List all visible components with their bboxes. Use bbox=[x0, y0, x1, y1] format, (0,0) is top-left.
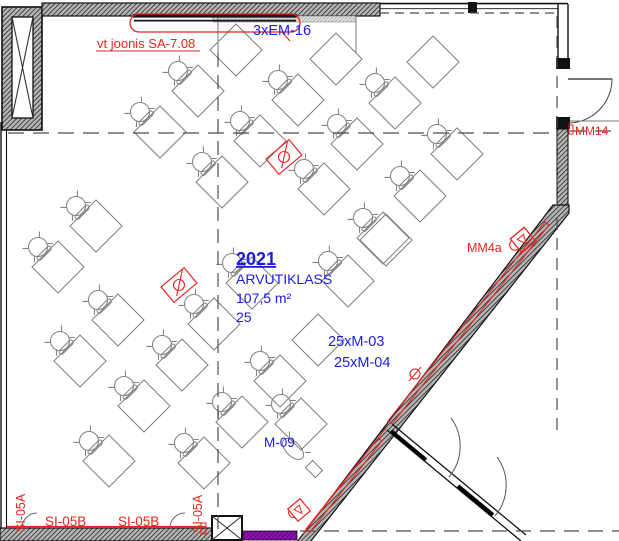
entrance-door-arc-2 bbox=[495, 457, 506, 516]
desk-chair bbox=[421, 118, 454, 151]
desk-table bbox=[394, 170, 446, 222]
right-wall-upper bbox=[556, 4, 570, 129]
monitor-label-1: 25xM-03 bbox=[328, 334, 384, 350]
mm4a-label: MM4a bbox=[467, 241, 502, 255]
entrance-wall bbox=[387, 418, 526, 541]
desk-chair bbox=[124, 96, 157, 129]
ref-note-label: vt joonis SA-7.08 bbox=[97, 36, 195, 51]
shaft-column bbox=[2, 7, 42, 130]
red-wall-line-diagonal bbox=[303, 428, 386, 534]
desk-chair bbox=[178, 288, 211, 321]
si05a-label-1: SI-05A bbox=[14, 493, 28, 532]
desk-chair bbox=[321, 108, 354, 141]
desk-chair bbox=[73, 425, 106, 458]
labels-layer: 3xEM-16 vt joonis SA-7.08 2021 ARVUTIKLA… bbox=[14, 23, 609, 533]
desk-table bbox=[118, 380, 170, 432]
desk-table bbox=[92, 294, 144, 346]
desk-table bbox=[431, 128, 483, 180]
desk-table bbox=[156, 339, 208, 391]
desk-table bbox=[188, 298, 240, 350]
desk-chair bbox=[262, 64, 295, 97]
desk-table bbox=[234, 115, 286, 167]
desk-table bbox=[298, 163, 350, 215]
door-swing-arc bbox=[568, 79, 612, 123]
desk-table bbox=[216, 396, 268, 448]
entrance-door-leaf-1 bbox=[391, 431, 426, 460]
em-label: 3xEM-16 bbox=[253, 23, 311, 39]
desk-chair bbox=[359, 67, 392, 100]
left-wall bbox=[1, 122, 7, 528]
right-wall-lower bbox=[557, 129, 568, 211]
desk-chair bbox=[347, 202, 380, 235]
desk-chair bbox=[288, 153, 321, 186]
purple-wall-segment bbox=[243, 531, 297, 540]
desk-table bbox=[134, 106, 186, 158]
desk-chair bbox=[168, 427, 201, 460]
valve-arc-2 bbox=[170, 513, 185, 528]
desk-table bbox=[70, 200, 122, 252]
desk-table bbox=[178, 437, 230, 489]
desk-table bbox=[254, 355, 306, 407]
desk-table bbox=[357, 212, 409, 264]
desk-table bbox=[32, 241, 84, 293]
desk-chair bbox=[244, 345, 277, 378]
desk-chair bbox=[186, 146, 219, 179]
entrance-door-arc-1 bbox=[449, 418, 460, 477]
desk-table bbox=[272, 74, 324, 126]
teacher-equipment bbox=[306, 461, 323, 478]
bottom-column bbox=[212, 516, 242, 540]
si05a-label-2: SI-05A bbox=[191, 494, 205, 533]
floor-plan-canvas: 3xEM-16 vt joonis SA-7.08 2021 ARVUTIKLA… bbox=[0, 0, 619, 541]
desk-chair bbox=[108, 370, 141, 403]
floor-outlet-icon bbox=[266, 140, 302, 175]
desk-table bbox=[369, 77, 421, 129]
floor-plan-drawing: 3xEM-16 vt joonis SA-7.08 2021 ARVUTIKLA… bbox=[0, 0, 619, 541]
si05b-label-2: SI-05B bbox=[118, 514, 159, 529]
desk-chair bbox=[60, 190, 93, 223]
top-right-wall bbox=[380, 2, 568, 13]
si05b-label-1: SI-05B bbox=[45, 514, 86, 529]
room-area-label: 107,5 m² bbox=[236, 290, 292, 306]
monitor-label-2: 25xM-04 bbox=[334, 355, 390, 371]
desk-table bbox=[331, 118, 383, 170]
m09-label: M-09 bbox=[264, 435, 295, 450]
entrance-door-leaf-2 bbox=[458, 486, 493, 515]
floor-outlet-icon bbox=[161, 268, 197, 303]
desk-table bbox=[407, 36, 459, 88]
room-name-label: ARVUTIKLASS bbox=[236, 271, 332, 287]
desk-table bbox=[83, 435, 135, 487]
mm14-label: MM14 bbox=[575, 124, 609, 138]
desk-chair bbox=[265, 388, 298, 421]
room-seats-label: 25 bbox=[236, 309, 252, 325]
speaker-device-icon bbox=[286, 499, 311, 523]
desk-table bbox=[310, 33, 362, 85]
desk-chair bbox=[206, 386, 239, 419]
desk-chair bbox=[162, 55, 195, 88]
desk-chair bbox=[22, 231, 55, 264]
desk-chair bbox=[146, 329, 179, 362]
desk-table bbox=[54, 335, 106, 387]
right-door bbox=[568, 79, 619, 123]
desk-table bbox=[196, 156, 248, 208]
desk-chair bbox=[44, 325, 77, 358]
desk-table bbox=[172, 65, 224, 117]
desk-chair bbox=[384, 160, 417, 193]
top-wall bbox=[42, 3, 380, 53]
wall-tick bbox=[468, 2, 477, 13]
desk-chair bbox=[82, 284, 115, 317]
room-number-label: 2021 bbox=[236, 249, 276, 269]
